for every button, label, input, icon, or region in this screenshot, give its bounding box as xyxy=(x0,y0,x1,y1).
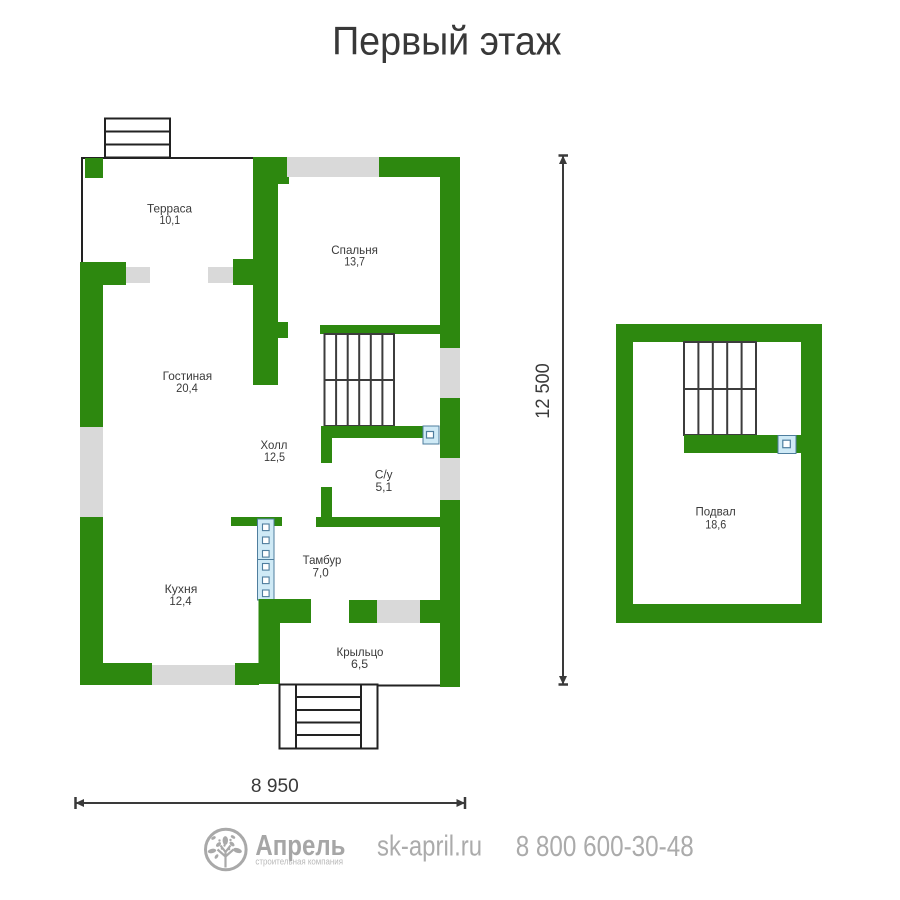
svg-text:5,1: 5,1 xyxy=(375,480,392,494)
svg-text:20,4: 20,4 xyxy=(176,381,198,395)
svg-text:13,7: 13,7 xyxy=(344,255,365,269)
svg-text:Первый этаж: Первый этаж xyxy=(332,19,561,63)
svg-text:sk-april.ru: sk-april.ru xyxy=(377,830,482,862)
svg-text:18,6: 18,6 xyxy=(705,517,726,531)
svg-text:7,0: 7,0 xyxy=(313,566,329,580)
svg-text:10,1: 10,1 xyxy=(160,213,181,227)
svg-text:8 800 600-30-48: 8 800 600-30-48 xyxy=(516,831,694,863)
svg-text:8 950: 8 950 xyxy=(251,776,299,797)
svg-text:строительная компания: строительная компания xyxy=(255,857,343,867)
svg-text:12,5: 12,5 xyxy=(264,450,285,464)
svg-text:12,4: 12,4 xyxy=(169,594,191,608)
svg-text:12 500: 12 500 xyxy=(533,363,554,419)
svg-text:6,5: 6,5 xyxy=(351,657,368,671)
